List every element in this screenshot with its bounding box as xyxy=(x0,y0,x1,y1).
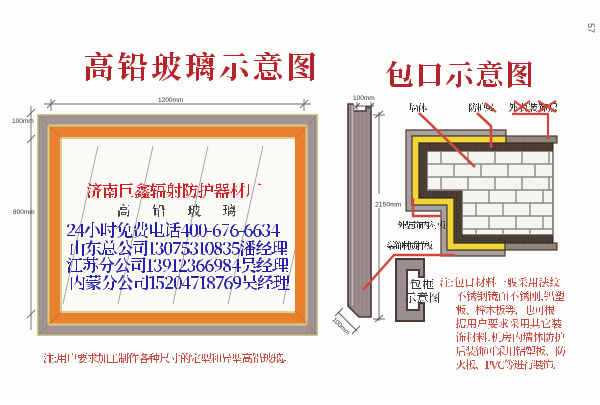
svg-text:57: 57 xyxy=(586,23,596,33)
svg-text:800mm: 800mm xyxy=(13,209,35,216)
svg-text:1200mm: 1200mm xyxy=(158,97,183,104)
svg-text:2150mm: 2150mm xyxy=(375,202,402,209)
svg-text:100mm: 100mm xyxy=(353,95,375,102)
svg-text:100mm: 100mm xyxy=(12,118,34,125)
